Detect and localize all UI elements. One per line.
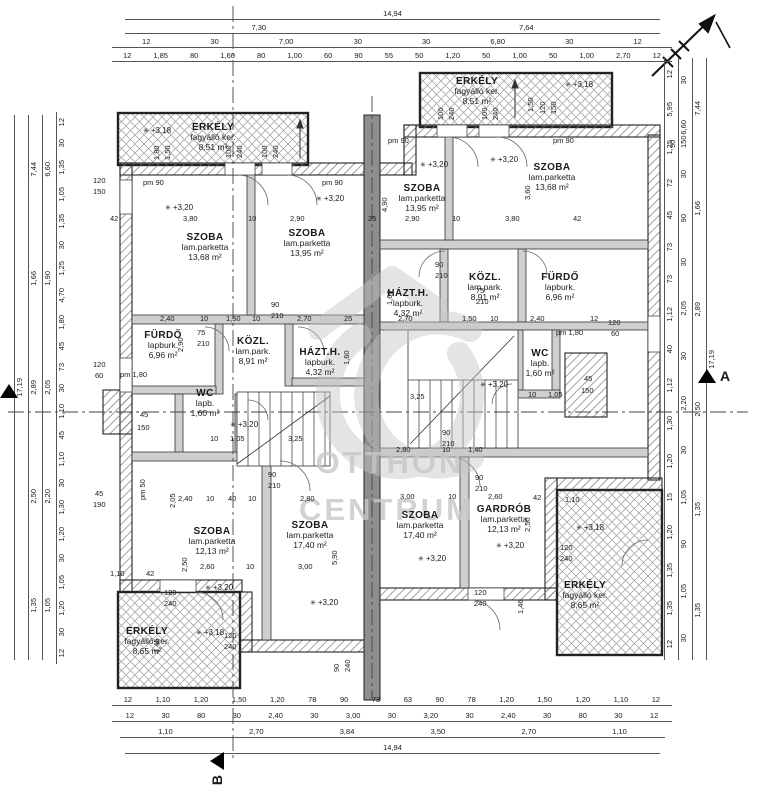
section-triangle-icon [698,369,716,383]
section-marker-a-left [0,384,22,398]
north-arrow-icon [652,16,730,76]
floorplan-page: OTTHON CENTRUM ERKÉLY fagyálló ker. 8,51… [0,0,757,797]
section-label: B [209,775,225,785]
floorplan-drawing [0,0,757,797]
section-marker-a-right: A [698,368,730,384]
section-triangle-icon [0,384,18,398]
staircase-left [237,392,330,466]
section-triangle-icon [210,752,224,770]
section-marker-b: B [210,752,224,788]
section-label: A [720,368,730,384]
